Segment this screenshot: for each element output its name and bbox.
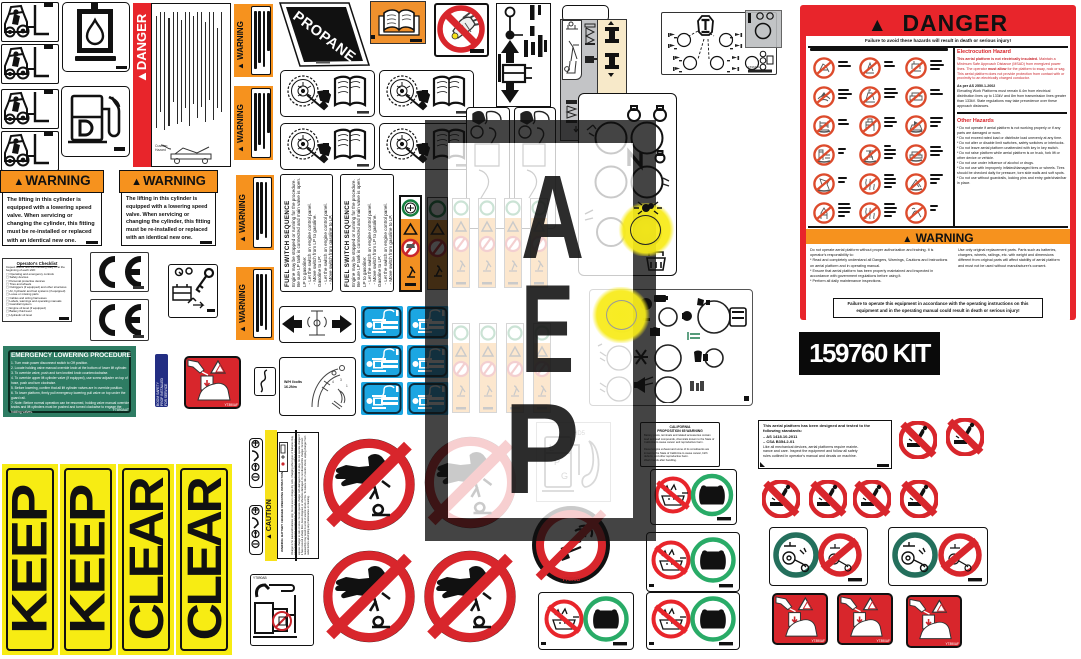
svg-text:3: 3: [340, 378, 342, 382]
svg-text:159643M: 159643M: [748, 65, 761, 69]
svg-text:YT890 I: YT890 I: [409, 471, 414, 485]
svg-text:4: 4: [332, 380, 334, 384]
svg-text:YT890 II: YT890 II: [510, 583, 515, 598]
svg-text:Hazard: Hazard: [155, 148, 166, 152]
svg-text:YT890B: YT890B: [562, 577, 581, 583]
svg-text:1: 1: [346, 384, 348, 388]
svg-text:YT890 II: YT890 II: [409, 583, 414, 598]
